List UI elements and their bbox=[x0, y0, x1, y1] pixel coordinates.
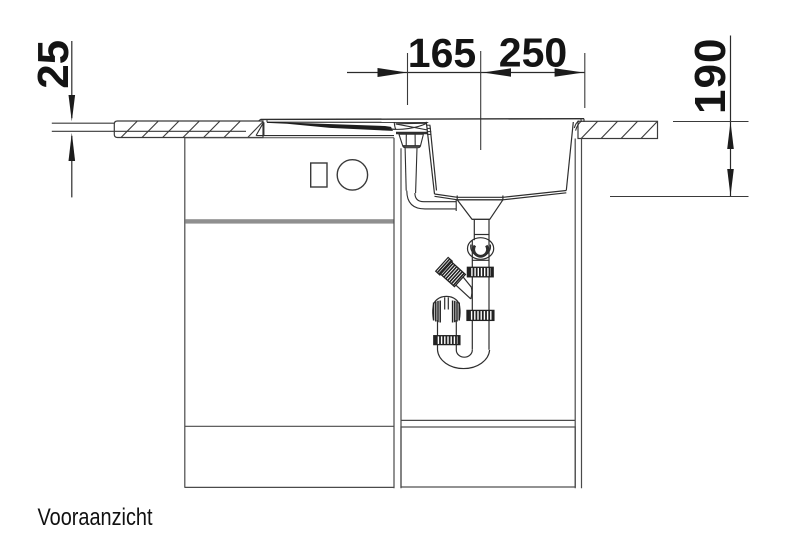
svg-text:190: 190 bbox=[686, 38, 735, 114]
svg-text:165: 165 bbox=[408, 30, 476, 76]
svg-text:Vooraanzicht: Vooraanzicht bbox=[38, 504, 153, 531]
svg-text:25: 25 bbox=[29, 40, 78, 89]
